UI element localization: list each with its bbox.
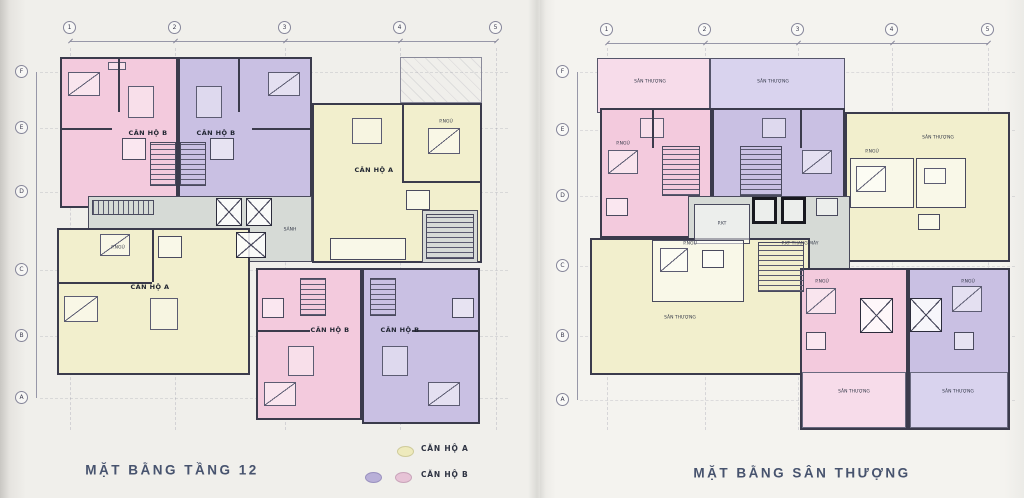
stairs	[662, 146, 700, 196]
grid-bubble-row: D	[556, 189, 569, 202]
bed	[952, 286, 982, 312]
bathroom	[702, 250, 724, 268]
unit-label-apartment-b: CĂN HỘ B	[311, 326, 350, 334]
room-label-bedroom: P.NGỦ	[865, 150, 879, 155]
grid-bubble-row: A	[15, 391, 28, 404]
room-label-bedroom: P.NGỦ	[961, 280, 975, 285]
partition-wall	[118, 57, 120, 112]
room-label-technical: P.KT	[718, 222, 727, 227]
legend-swatch-apartment-b-purple	[365, 472, 382, 483]
floor-plan-sheet: 1 2 3 4 5 F E D C B A P.NGỦ SẢNH	[0, 0, 1024, 498]
wardrobe	[108, 62, 126, 70]
grid-bubble-col: 5	[981, 23, 994, 36]
grid-bubble-row: E	[556, 123, 569, 136]
unit-label-apartment-b: CĂN HỘ B	[129, 129, 168, 137]
stairs	[426, 214, 474, 259]
bathroom	[816, 198, 838, 216]
stairs	[370, 278, 396, 316]
bed	[802, 150, 832, 174]
terrace-label: SÂN THƯỢNG	[942, 390, 974, 395]
stairs	[92, 200, 154, 215]
partition-wall	[152, 228, 154, 282]
grid-bubble-row: B	[556, 329, 569, 342]
bed	[856, 166, 886, 192]
grid-bubble-row: D	[15, 185, 28, 198]
bathroom	[406, 190, 430, 210]
terrace-strip-pink	[802, 372, 906, 428]
grid-bubble-col: 4	[393, 21, 406, 34]
bed	[264, 382, 296, 406]
elevator-shaft	[246, 198, 272, 226]
legend-label-apartment-a: CĂN HỘ A	[421, 444, 469, 453]
bed	[660, 248, 688, 272]
dimension-line	[36, 72, 37, 398]
elevator-shaft	[752, 197, 777, 224]
stairs	[180, 142, 206, 186]
legend-label-apartment-b: CĂN HỘ B	[421, 470, 469, 479]
unit-label-apartment-a: CĂN HỘ A	[355, 166, 394, 174]
partition-wall	[402, 103, 404, 181]
dining-table	[382, 346, 408, 376]
bed	[608, 150, 638, 174]
bathroom	[122, 138, 146, 160]
stairs	[300, 278, 326, 316]
grid-bubble-row: F	[556, 65, 569, 78]
partition-wall	[412, 330, 480, 332]
grid-bubble-col: 1	[600, 23, 613, 36]
elevator-shaft	[216, 198, 242, 226]
grid-bubble-col: 3	[278, 21, 291, 34]
grid-bubble-col: 1	[63, 21, 76, 34]
room-label-bedroom: P.NGỦ	[683, 242, 697, 247]
terrace-label: SÂN THƯỢNG	[757, 80, 789, 85]
terrace-strip-purple	[910, 372, 1008, 428]
partition-wall	[800, 108, 802, 148]
unit-label-apartment-b: CĂN HỘ B	[381, 326, 420, 334]
bathroom	[918, 214, 940, 230]
terrace-label: SÂN THƯỢNG	[838, 390, 870, 395]
legend-swatch-apartment-b-pink	[395, 472, 412, 483]
grid-bubble-col: 2	[698, 23, 711, 36]
dimension-line	[577, 72, 578, 400]
room-label-lobby: SẢNH	[284, 228, 297, 233]
grid-bubble-col: 4	[885, 23, 898, 36]
bathroom	[606, 198, 628, 216]
grid-axis	[496, 48, 497, 430]
bathroom	[806, 332, 826, 350]
grid-bubble-row: C	[556, 259, 569, 272]
dining-table	[128, 86, 154, 118]
roof-outline	[400, 57, 482, 103]
grid-bubble-row: C	[15, 263, 28, 276]
partition-wall	[238, 57, 240, 112]
grid-bubble-col: 5	[489, 21, 502, 34]
page-seam	[528, 0, 546, 498]
bed	[806, 288, 836, 314]
left-plan-title: MẶT BẰNG TẦNG 12	[85, 463, 259, 478]
table	[924, 168, 946, 184]
terrace-label: SÂN THƯỢNG	[664, 316, 696, 321]
terrace-pink	[597, 58, 710, 113]
room-label-bedroom: P.NGỦ	[439, 120, 453, 125]
partition-wall	[256, 330, 310, 332]
partition-wall	[652, 108, 654, 148]
unit-label-apartment-a: CĂN HỘ A	[131, 283, 170, 291]
bed	[64, 296, 98, 322]
terrace-label: SÂN THƯỢNG	[634, 80, 666, 85]
dining-table	[288, 346, 314, 376]
right-plan-title: MẶT BẰNG SÂN THƯỢNG	[693, 466, 910, 481]
stairs	[150, 142, 176, 186]
unit-label-apartment-b: CĂN HỘ B	[197, 129, 236, 137]
terrace-label: SÂN THƯỢNG	[922, 136, 954, 141]
balcony	[330, 238, 406, 260]
grid-bubble-row: A	[556, 393, 569, 406]
bathroom	[262, 298, 284, 318]
grid-bubble-row: B	[15, 329, 28, 342]
terrace-purple	[710, 58, 845, 113]
grid-bubble-col: 2	[168, 21, 181, 34]
bed	[68, 72, 100, 96]
elevator-shaft	[781, 197, 806, 224]
bed	[428, 128, 460, 154]
room-label-bedroom: P.NGỦ	[111, 246, 125, 251]
stairs	[740, 146, 782, 196]
dining-table	[150, 298, 178, 330]
partition-wall	[60, 128, 112, 130]
bed	[268, 72, 300, 96]
elevator-shaft	[236, 232, 266, 258]
room-label-bedroom: P.NGỦ	[616, 142, 630, 147]
partition-wall	[402, 181, 482, 183]
dining-table	[196, 86, 222, 118]
stairs	[758, 242, 804, 292]
stairwell	[860, 298, 893, 333]
partition-wall	[252, 128, 312, 130]
grid-bubble-row: E	[15, 121, 28, 134]
bathroom	[210, 138, 234, 160]
sofa-table	[352, 118, 382, 144]
grid-bubble-col: 3	[791, 23, 804, 36]
dining-table	[762, 118, 786, 138]
stairwell	[910, 298, 942, 332]
bathroom	[158, 236, 182, 258]
legend-swatch-apartment-a	[397, 446, 414, 457]
bed	[428, 382, 460, 406]
bathroom	[452, 298, 474, 318]
grid-bubble-row: F	[15, 65, 28, 78]
bathroom	[954, 332, 974, 350]
room-label-bedroom: P.NGỦ	[815, 280, 829, 285]
